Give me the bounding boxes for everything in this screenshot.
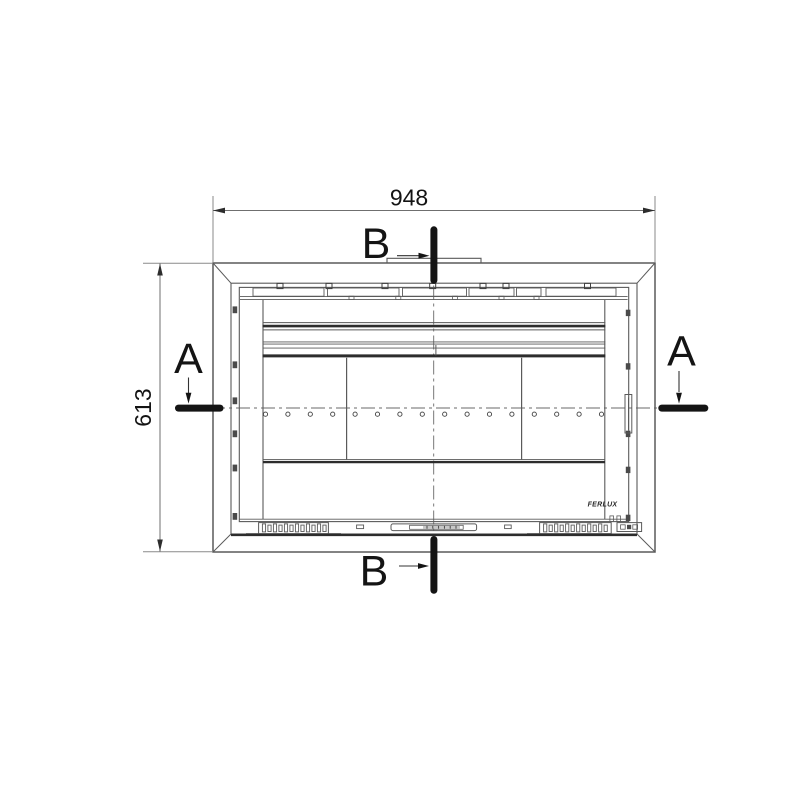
section-cut-bar <box>658 405 708 412</box>
rivet-dot <box>308 412 312 416</box>
rivet-dot <box>375 412 379 416</box>
rivet-dot <box>577 412 581 416</box>
rivet-dot <box>465 412 469 416</box>
latch-pin <box>626 310 631 316</box>
hinge-pin <box>233 361 238 368</box>
rivet-dot <box>353 412 357 416</box>
rivet-dot <box>398 412 402 416</box>
height-dimension-value: 613 <box>130 388 156 426</box>
latch-pin <box>626 363 631 369</box>
paper-background <box>0 0 800 800</box>
technical-drawing: FERLUX 948 613 B B A A <box>0 0 800 800</box>
width-dimension-value: 948 <box>390 185 428 211</box>
hinge-pin <box>233 397 238 404</box>
latch-pin <box>626 467 631 473</box>
rivet-dot <box>599 412 603 416</box>
rivet-dot <box>532 412 536 416</box>
air-slider-grip <box>423 526 460 529</box>
brand-logo: FERLUX <box>588 502 619 509</box>
section-cut-bar <box>430 226 437 283</box>
rivet-dot <box>331 412 335 416</box>
section-cut-bar <box>175 405 224 412</box>
latch-pin <box>626 515 631 521</box>
section-label-b-bottom: B <box>360 548 389 596</box>
rivet-dot <box>443 412 447 416</box>
rivet-dot <box>487 412 491 416</box>
rivet-dot <box>555 412 559 416</box>
hinge-pin <box>233 430 238 437</box>
hinge-pin <box>233 513 238 520</box>
latch-pin <box>626 431 631 437</box>
section-label-a-right: A <box>667 328 696 376</box>
rivet-dot <box>263 412 267 416</box>
rivet-dot <box>420 412 424 416</box>
section-cut-bar <box>430 536 437 594</box>
hinge-pin <box>233 465 238 472</box>
hinge-pin <box>233 306 238 313</box>
drawing-canvas: FERLUX 948 613 B B A A <box>0 0 800 800</box>
rivet-dot <box>510 412 514 416</box>
accessory-cell-2 <box>627 525 631 529</box>
rivet-dot <box>286 412 290 416</box>
section-label-b-top: B <box>362 220 391 268</box>
section-label-a-left: A <box>174 335 203 383</box>
